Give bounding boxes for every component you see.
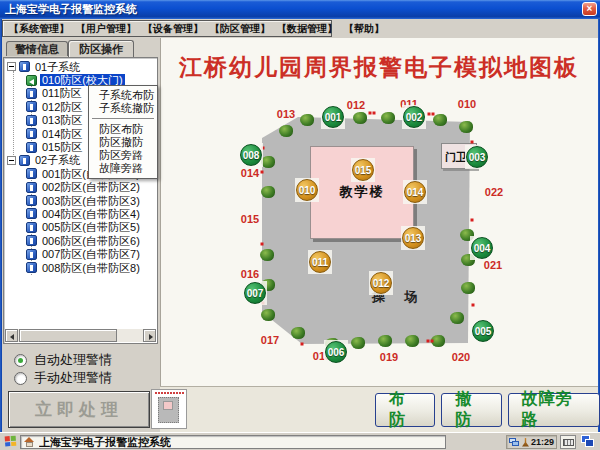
minimap-thumbnail[interactable] [151,389,187,429]
zone-marker-alert[interactable]: 014 [403,180,427,204]
scroll-thumb[interactable] [19,329,117,342]
icon-glyph [30,238,33,244]
minimap-building [163,401,173,410]
tree-item-label: 011防区 [40,87,84,99]
zone-icon [26,208,37,219]
tree-item-label: 002防区(自带防区2) [40,181,142,193]
menu-item[interactable]: 【防区管理】 [208,22,272,36]
expander-icon[interactable] [7,62,16,71]
zone-marker-number: 014 [404,181,426,203]
keyboard-icon [563,439,574,446]
tree-item-label: 004防区(自带防区4) [40,208,142,220]
zone-icon [19,61,30,72]
system-tray: 21:29 [506,435,557,449]
tree-item-zone[interactable]: 005防区(自带防区5) [4,221,157,234]
zone-marker-armed[interactable]: 005 [471,319,495,343]
flag-green [11,436,16,441]
menu-item[interactable]: 【用户管理】 [74,22,138,36]
zone-marker-alert[interactable]: 015 [351,158,375,182]
tree-icon [405,335,419,347]
radio-icon[interactable] [14,372,27,385]
app-window: 上海宝学电子报警监控系统 × 【系统管理】【用户管理】【设备管理】【防区管理】【… [0,0,600,450]
sensor-dot-icon [472,304,475,307]
tree-icon [378,335,392,347]
radio-label: 自动处理警情 [34,351,112,369]
icon-glyph [30,265,33,271]
zone-marker-number: 003 [466,146,488,168]
zone-armed-icon [26,75,37,86]
radio-label: 手动处理警情 [34,369,112,387]
action-button[interactable]: 布防 [375,393,435,427]
icon-glyph [30,145,33,151]
zone-marker-armed[interactable]: 001 [321,105,345,129]
tree-icon [381,112,395,124]
zone-marker-number: 011 [309,251,331,273]
action-button-row: 布防撤防故障旁路 [375,393,600,427]
monitor-b [512,441,519,446]
icon-glyph [23,158,26,164]
zone-icon [26,182,37,193]
scroll-left-button[interactable] [5,329,18,342]
radio-option[interactable]: 自动处理警情 [14,352,112,368]
zone-number-label: 010 [458,98,476,110]
tree-icon [459,121,473,133]
tree-icon [279,125,293,137]
icon-glyph [30,91,33,97]
tree-item-label: 013防区 [40,114,84,126]
tree-item-label: 003防区(自带防区3) [40,195,142,207]
sensor-dot-icon [431,340,434,343]
zone-marker-number: 005 [472,320,494,342]
sensor-dot-icon [261,171,264,174]
radio-icon[interactable] [14,354,27,367]
zone-marker-armed[interactable]: 006 [324,340,348,364]
input-method-button[interactable] [560,435,576,449]
icon-glyph [23,64,26,70]
tree-icon [261,156,275,168]
icon-glyph [30,104,33,110]
zone-marker-number: 015 [352,159,374,181]
sensor-dot-icon [427,340,430,343]
process-now-button[interactable]: 立即处理 [8,391,150,428]
icon-glyph [30,225,33,231]
tree-item-label: 01子系统 [33,61,82,73]
zone-marker-number: 007 [244,282,266,304]
tree-item-label: 008防区(自带防区8) [40,262,142,274]
layer-b [585,439,594,447]
tree-item-zone[interactable]: 002防区(自带防区2) [4,181,157,194]
zone-icon [26,128,37,139]
zone-icon [26,262,37,273]
sensor-dot-icon [428,113,431,116]
tree-item-zone[interactable]: 008防区(自带防区8) [4,261,157,274]
zone-marker-number: 012 [370,272,392,294]
minus-glyph [9,66,14,67]
zone-number-label: 015 [241,213,259,225]
tree-icon [261,186,275,198]
taskbar-app-label: 上海宝学电子报警监控系统 [39,435,171,450]
menu-item[interactable]: 【帮助】 [342,22,386,36]
tree-item-label: 012防区 [40,101,84,113]
right-arrow-icon [149,334,153,340]
menu-item[interactable]: 【系统管理】 [7,22,71,36]
sensor-dot-icon [301,343,304,346]
flag-blue [5,442,10,447]
tree-item-zone[interactable]: 004防区(自带防区4) [4,207,157,220]
tree-icon [300,114,314,126]
start-button-icon[interactable] [5,436,18,448]
icon-glyph [30,131,33,137]
menu-bar: 【系统管理】【用户管理】【设备管理】【防区管理】【数据管理】【帮助】 [2,20,332,37]
minimap-title-line [155,392,184,394]
zone-icon [26,101,37,112]
zone-icon [26,235,37,246]
tree-item-zone[interactable]: 003防区(自带防区3) [4,194,157,207]
tree-icon [260,249,274,261]
sensor-dot-icon [432,113,435,116]
zone-number-label: 017 [261,334,279,346]
tree-item-label: 014防区 [40,128,84,140]
zone-marker-alert[interactable]: 010 [295,178,319,202]
zone-icon [19,155,30,166]
zone-marker-number: 002 [403,106,425,128]
zone-marker-alert[interactable]: 012 [369,271,393,295]
action-button[interactable]: 故障旁路 [508,393,600,427]
tree-item-subsystem[interactable]: 01子系统 [4,60,157,73]
menu-item[interactable]: 【设备管理】 [141,22,205,36]
icon-glyph [30,198,33,204]
icon-glyph [30,252,33,258]
house-body [26,442,33,447]
zone-number-label: 020 [452,351,470,363]
expander-icon[interactable] [7,156,16,165]
radio-option[interactable]: 手动处理警情 [14,370,112,386]
network-icon[interactable] [509,438,520,447]
tree-item-label: 005防区(自带防区5) [40,221,142,233]
zone-icon [26,142,37,153]
tab-alarm-info[interactable]: 警情信息 [6,41,68,56]
context-menu-item[interactable]: 防区旁路 [89,149,157,162]
taskbar-app-button[interactable]: 上海宝学电子报警监控系统 [20,435,446,449]
taskbar: 上海宝学电子报警监控系统 21:29 [0,432,600,450]
zone-icon [26,195,37,206]
menu-separator [92,118,154,119]
action-button[interactable]: 撤防 [441,393,501,427]
scroll-right-button[interactable] [143,329,156,342]
tree-item-label: 02子系统 [33,154,82,166]
zone-marker-number: 008 [240,144,262,166]
menu-item[interactable]: 【数据管理】 [275,22,339,36]
clock: 21:29 [531,437,554,447]
icon-glyph [30,185,33,191]
zone-marker-armed[interactable]: 007 [243,281,267,305]
zone-number-label: 014 [241,167,259,179]
zone-marker-armed[interactable]: 004 [470,236,494,260]
radio-dot [18,358,23,363]
sensor-dot-icon [261,243,264,246]
zone-marker-number: 010 [296,179,318,201]
tree-item-label: 006防区(自带防区6) [40,235,142,247]
zone-marker-armed[interactable]: 003 [465,145,489,169]
tab-zone-operation[interactable]: 防区操作 [68,40,134,57]
minimap-ground [158,397,179,423]
tree-item-zone[interactable]: 006防区(自带防区6) [4,234,157,247]
context-menu-item[interactable]: 子系统撤防 [89,102,157,115]
zone-icon [26,249,37,260]
sensor-dot-icon [471,219,474,222]
context-menu-item[interactable]: 故障旁路 [89,162,157,175]
context-menu-item[interactable]: 防区布防 [89,123,157,136]
zone-marker-number: 013 [402,227,424,249]
tree-icon [291,327,305,339]
context-menu-item[interactable]: 防区撤防 [89,136,157,149]
window-title: 上海宝学电子报警监控系统 [5,2,137,17]
icon-glyph [29,79,34,85]
zone-marker-number: 006 [325,341,347,363]
zone-number-label: 016 [241,268,259,280]
tree-item-label: 007防区(自带防区7) [40,248,142,260]
sensor-dot-icon [369,112,372,115]
house-icon [24,437,35,447]
sensor-dot-icon [373,112,376,115]
minus-glyph [9,160,14,161]
layered-windows-icon[interactable] [581,435,594,448]
zone-number-label: 022 [485,186,503,198]
zone-number-label: 013 [277,108,295,120]
zone-number-label: 019 [380,351,398,363]
tree-hscrollbar[interactable] [5,329,156,342]
tree-icon [461,282,475,294]
tree-item-zone[interactable]: 007防区(自带防区7) [4,247,157,260]
tree-item-label: 015防区 [40,141,84,153]
sensor-dot-icon [471,141,474,144]
icon-glyph [30,211,33,217]
tree-icon [351,337,365,349]
close-button[interactable]: × [582,2,597,16]
zone-number-label: 012 [347,99,365,111]
tree-icon [261,309,275,321]
zone-marker-alert[interactable]: 013 [401,226,425,250]
zone-icon [26,115,37,126]
icon-glyph [30,118,33,124]
zone-icon [26,88,37,99]
zone-marker-armed[interactable]: 002 [402,105,426,129]
gate-house-label: 门卫 [445,150,467,165]
context-menu: 子系统布防子系统撤防防区布防防区撤防防区旁路故障旁路 [88,85,158,179]
flag-red [5,436,10,441]
teaching-building-label: 教学楼 [310,183,414,201]
tray-tool-icon[interactable] [522,438,529,447]
tree-icon [433,114,447,126]
zone-marker-number: 004 [471,237,493,259]
tree-icon [353,112,367,124]
zone-icon [26,168,37,179]
zone-marker-number: 001 [322,106,344,128]
context-menu-item[interactable]: 子系统布防 [89,89,157,102]
zone-marker-alert[interactable]: 011 [308,250,332,274]
left-arrow-icon [10,334,14,340]
map-title: 江桥幼儿园周界报警电子模拟地图板 [164,52,594,83]
zone-number-label: 021 [484,259,502,271]
icon-glyph [30,171,33,177]
tree-icon [450,312,464,324]
zone-marker-armed[interactable]: 008 [239,143,263,167]
flag-yellow [11,441,16,446]
title-bar[interactable]: 上海宝学电子报警监控系统 [0,0,600,19]
zone-icon [26,222,37,233]
